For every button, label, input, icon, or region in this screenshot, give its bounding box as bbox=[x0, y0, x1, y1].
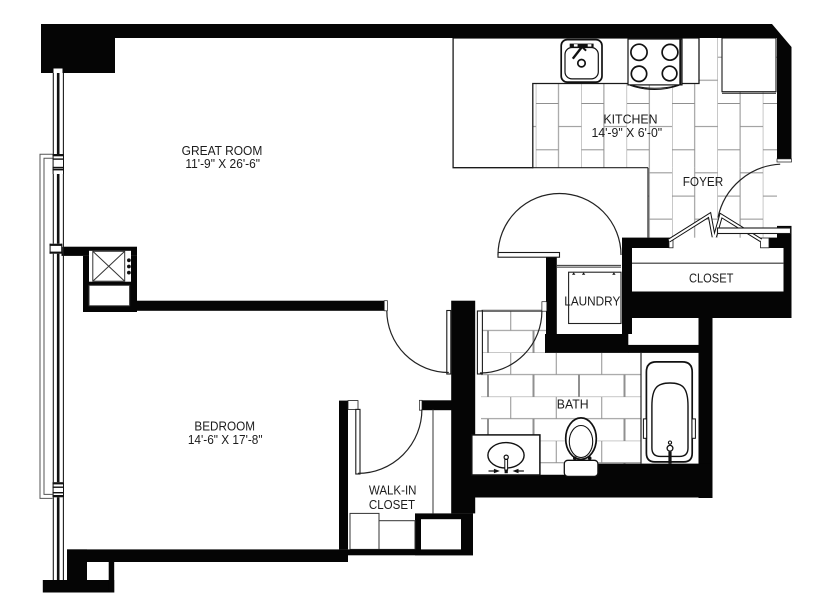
svg-text:11'-9" X 26'-6": 11'-9" X 26'-6" bbox=[185, 156, 260, 171]
svg-text:CLOSET: CLOSET bbox=[369, 497, 415, 512]
svg-text:14'-6" X 17'-8": 14'-6" X 17'-8" bbox=[188, 432, 263, 447]
svg-text:FOYER: FOYER bbox=[683, 174, 724, 189]
svg-text:LAUNDRY: LAUNDRY bbox=[564, 294, 620, 309]
svg-text:14'-9" X 6'-0": 14'-9" X 6'-0" bbox=[591, 125, 662, 140]
svg-text:CLOSET: CLOSET bbox=[689, 271, 734, 286]
svg-text:BATH: BATH bbox=[557, 397, 589, 412]
svg-text:BEDROOM: BEDROOM bbox=[194, 418, 255, 433]
svg-text:WALK-IN: WALK-IN bbox=[369, 483, 417, 498]
